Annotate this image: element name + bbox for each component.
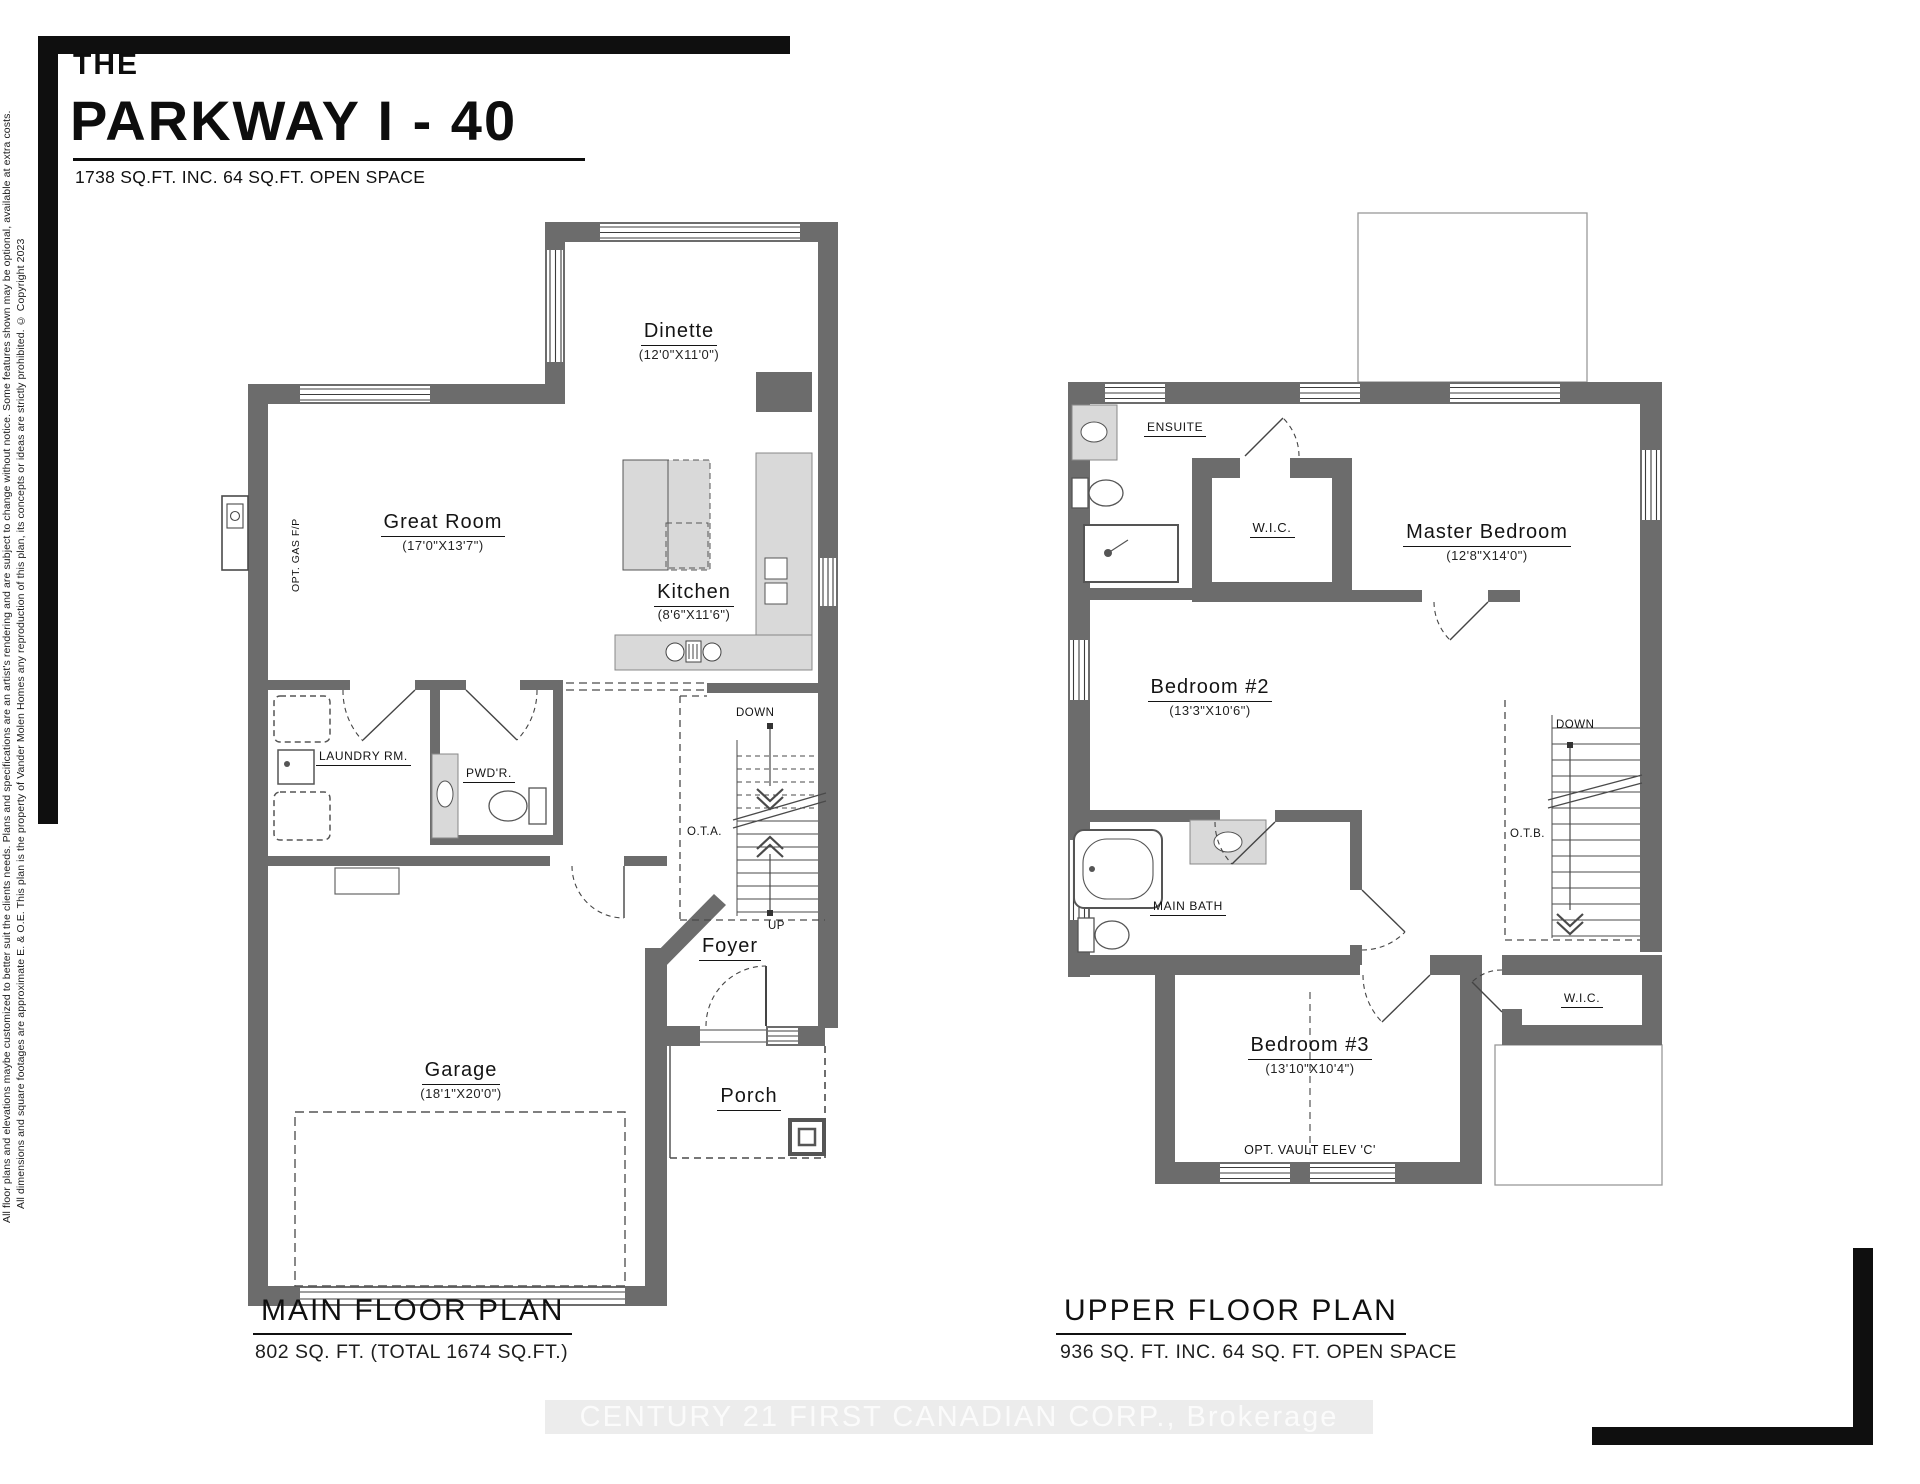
kitchen-sink-icon [765, 558, 787, 579]
bath-toilet-icon [1095, 921, 1129, 949]
room-label-dinette: Dinette [589, 320, 769, 346]
powder-sink-icon [437, 781, 453, 807]
side-disclaimer-2: All dimensions and square footages are a… [15, 64, 28, 1209]
ensuite-sink-icon [1081, 422, 1107, 442]
annotation-opt-vault: OPT. VAULT ELEV 'C' [1190, 1143, 1430, 1157]
room-label-laundry: LAUNDRY RM. [316, 749, 411, 766]
open-space-outline-bottom [1495, 1045, 1662, 1185]
laundry-sink-icon [278, 750, 314, 784]
page-subtitle: 1738 SQ.FT. INC. 64 SQ.FT. OPEN SPACE [75, 167, 425, 188]
annotation-gas-fireplace: OPT. GAS F/P [290, 496, 302, 592]
room-label-bedroom-3: Bedroom #3 [1210, 1034, 1410, 1060]
stairs-upper [1505, 700, 1642, 940]
room-label-main-bath: MAIN BATH [1150, 899, 1226, 916]
room-dims-great-room: (17'0"X13'7") [333, 538, 553, 553]
ensuite-toilet-icon [1089, 480, 1123, 506]
main-floor-plan-drawing [220, 200, 860, 1380]
upper-floor-caption-sub: 936 SQ. FT. INC. 64 SQ. FT. OPEN SPACE [1060, 1341, 1457, 1364]
room-dims-bedroom-2: (13'3"X10'6") [1110, 703, 1310, 718]
room-dims-garage: (18'1"X20'0") [361, 1086, 561, 1101]
dryer-icon [274, 792, 330, 840]
corner-mark-bottom-right-h [1592, 1427, 1873, 1445]
main-floor-caption-sub: 802 SQ. FT. (TOTAL 1674 SQ.FT.) [255, 1341, 568, 1364]
room-dims-kitchen: (8'6"X11'6") [614, 607, 774, 622]
porch-post-icon [790, 1120, 824, 1154]
toilet-tank-icon [529, 788, 546, 824]
room-label-wic-master: W.I.C. [1222, 520, 1322, 538]
title-underline [73, 158, 585, 161]
floor-plan-sheet: All floor plans and elevations maybe cus… [0, 0, 1920, 1484]
corner-mark-left [38, 36, 58, 824]
room-dims-master-bedroom: (12'8"X14'0") [1377, 548, 1597, 563]
room-dims-bedroom-3: (13'10"X10'4") [1210, 1061, 1410, 1076]
kitchen-counters [615, 453, 812, 670]
stairs-main [566, 683, 826, 920]
room-label-master-bedroom: Master Bedroom [1377, 521, 1597, 547]
room-label-wic-bedroom3: W.I.C. [1532, 991, 1632, 1008]
plan-brand-the: THE [73, 48, 139, 82]
page-title: PARKWAY I - 40 [70, 88, 517, 153]
open-space-outline-top [1358, 213, 1587, 382]
tub-icon [1074, 830, 1162, 908]
garage-door-outline [295, 1112, 625, 1286]
stair-label-down: DOWN [736, 707, 774, 719]
garage-step [335, 868, 399, 894]
side-disclaimer-1: All floor plans and elevations maybe cus… [1, 48, 14, 1223]
stair-label-up: UP [768, 920, 785, 932]
room-label-foyer: Foyer [670, 935, 790, 961]
room-dims-dinette: (12'0"X11'0") [589, 347, 769, 362]
room-label-porch: Porch [689, 1085, 809, 1111]
upper-floor-caption: UPPER FLOOR PLAN [1056, 1294, 1406, 1335]
corner-mark-top [38, 36, 790, 54]
corner-mark-bottom-right-v [1853, 1248, 1873, 1445]
stair-label-ota: O.T.A. [687, 826, 722, 838]
brokerage-watermark: CENTURY 21 FIRST CANADIAN CORP., Brokera… [545, 1400, 1373, 1434]
upper-floor-plan: ENSUITE W.I.C. Master Bedroom (12'8"X14'… [1060, 200, 1680, 1200]
shower-icon [1084, 525, 1178, 582]
fireplace-icon [222, 496, 248, 570]
stair-label-down-upper: DOWN [1556, 719, 1594, 731]
room-label-garage: Garage [361, 1059, 561, 1085]
stair-arrow-down-icon [1557, 914, 1583, 934]
stair-label-otb: O.T.B. [1510, 828, 1545, 840]
room-label-ensuite: ENSUITE [1144, 420, 1206, 437]
room-label-bedroom-2: Bedroom #2 [1110, 676, 1310, 702]
room-label-powder: PWD'R. [463, 766, 515, 783]
washer-icon [274, 696, 330, 742]
toilet-icon [489, 791, 527, 821]
main-floor-plan: Dinette (12'0"X11'0") Great Room (17'0"X… [220, 200, 860, 1380]
room-label-great-room: Great Room [333, 511, 553, 537]
room-label-kitchen: Kitchen [614, 581, 774, 607]
main-floor-caption: MAIN FLOOR PLAN [253, 1294, 572, 1335]
